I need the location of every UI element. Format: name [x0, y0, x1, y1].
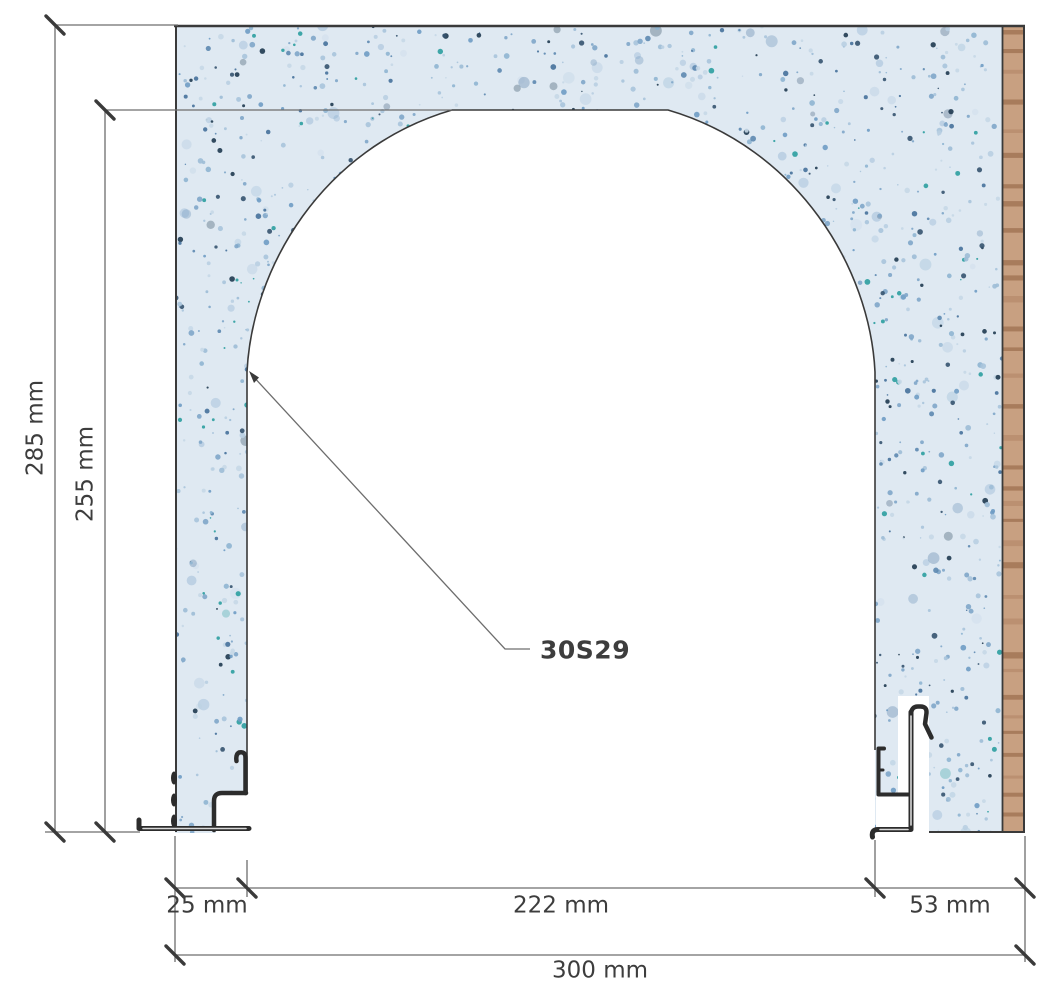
arch-opening-edge: [247, 110, 875, 794]
wall-section-fill: [175, 25, 1002, 833]
leader-line: [249, 371, 530, 649]
dimension-label-left-jamb-width: 25 mm: [166, 895, 247, 918]
dimension-label-overall-width: 300 mm: [552, 960, 648, 983]
technical-drawing-canvas: 285 mm 255 mm 25 mm 222 mm 53 mm 300 mm …: [0, 0, 1056, 988]
adhesive-dab: [171, 815, 177, 828]
wood-batten: [1003, 26, 1025, 833]
section-drawing: [0, 0, 1056, 988]
adhesive-dab: [171, 772, 177, 785]
dimension-label-opening-width: 222 mm: [513, 895, 609, 918]
dimension-label-opening-height: 255 mm: [75, 426, 98, 522]
adhesive-dab: [171, 794, 177, 807]
part-number-label: 30S29: [540, 638, 630, 663]
dimension-label-right-jamb-width: 53 mm: [909, 895, 990, 918]
profile-cutouts: [216, 696, 929, 833]
dimension-label-overall-height: 285 mm: [25, 380, 48, 476]
